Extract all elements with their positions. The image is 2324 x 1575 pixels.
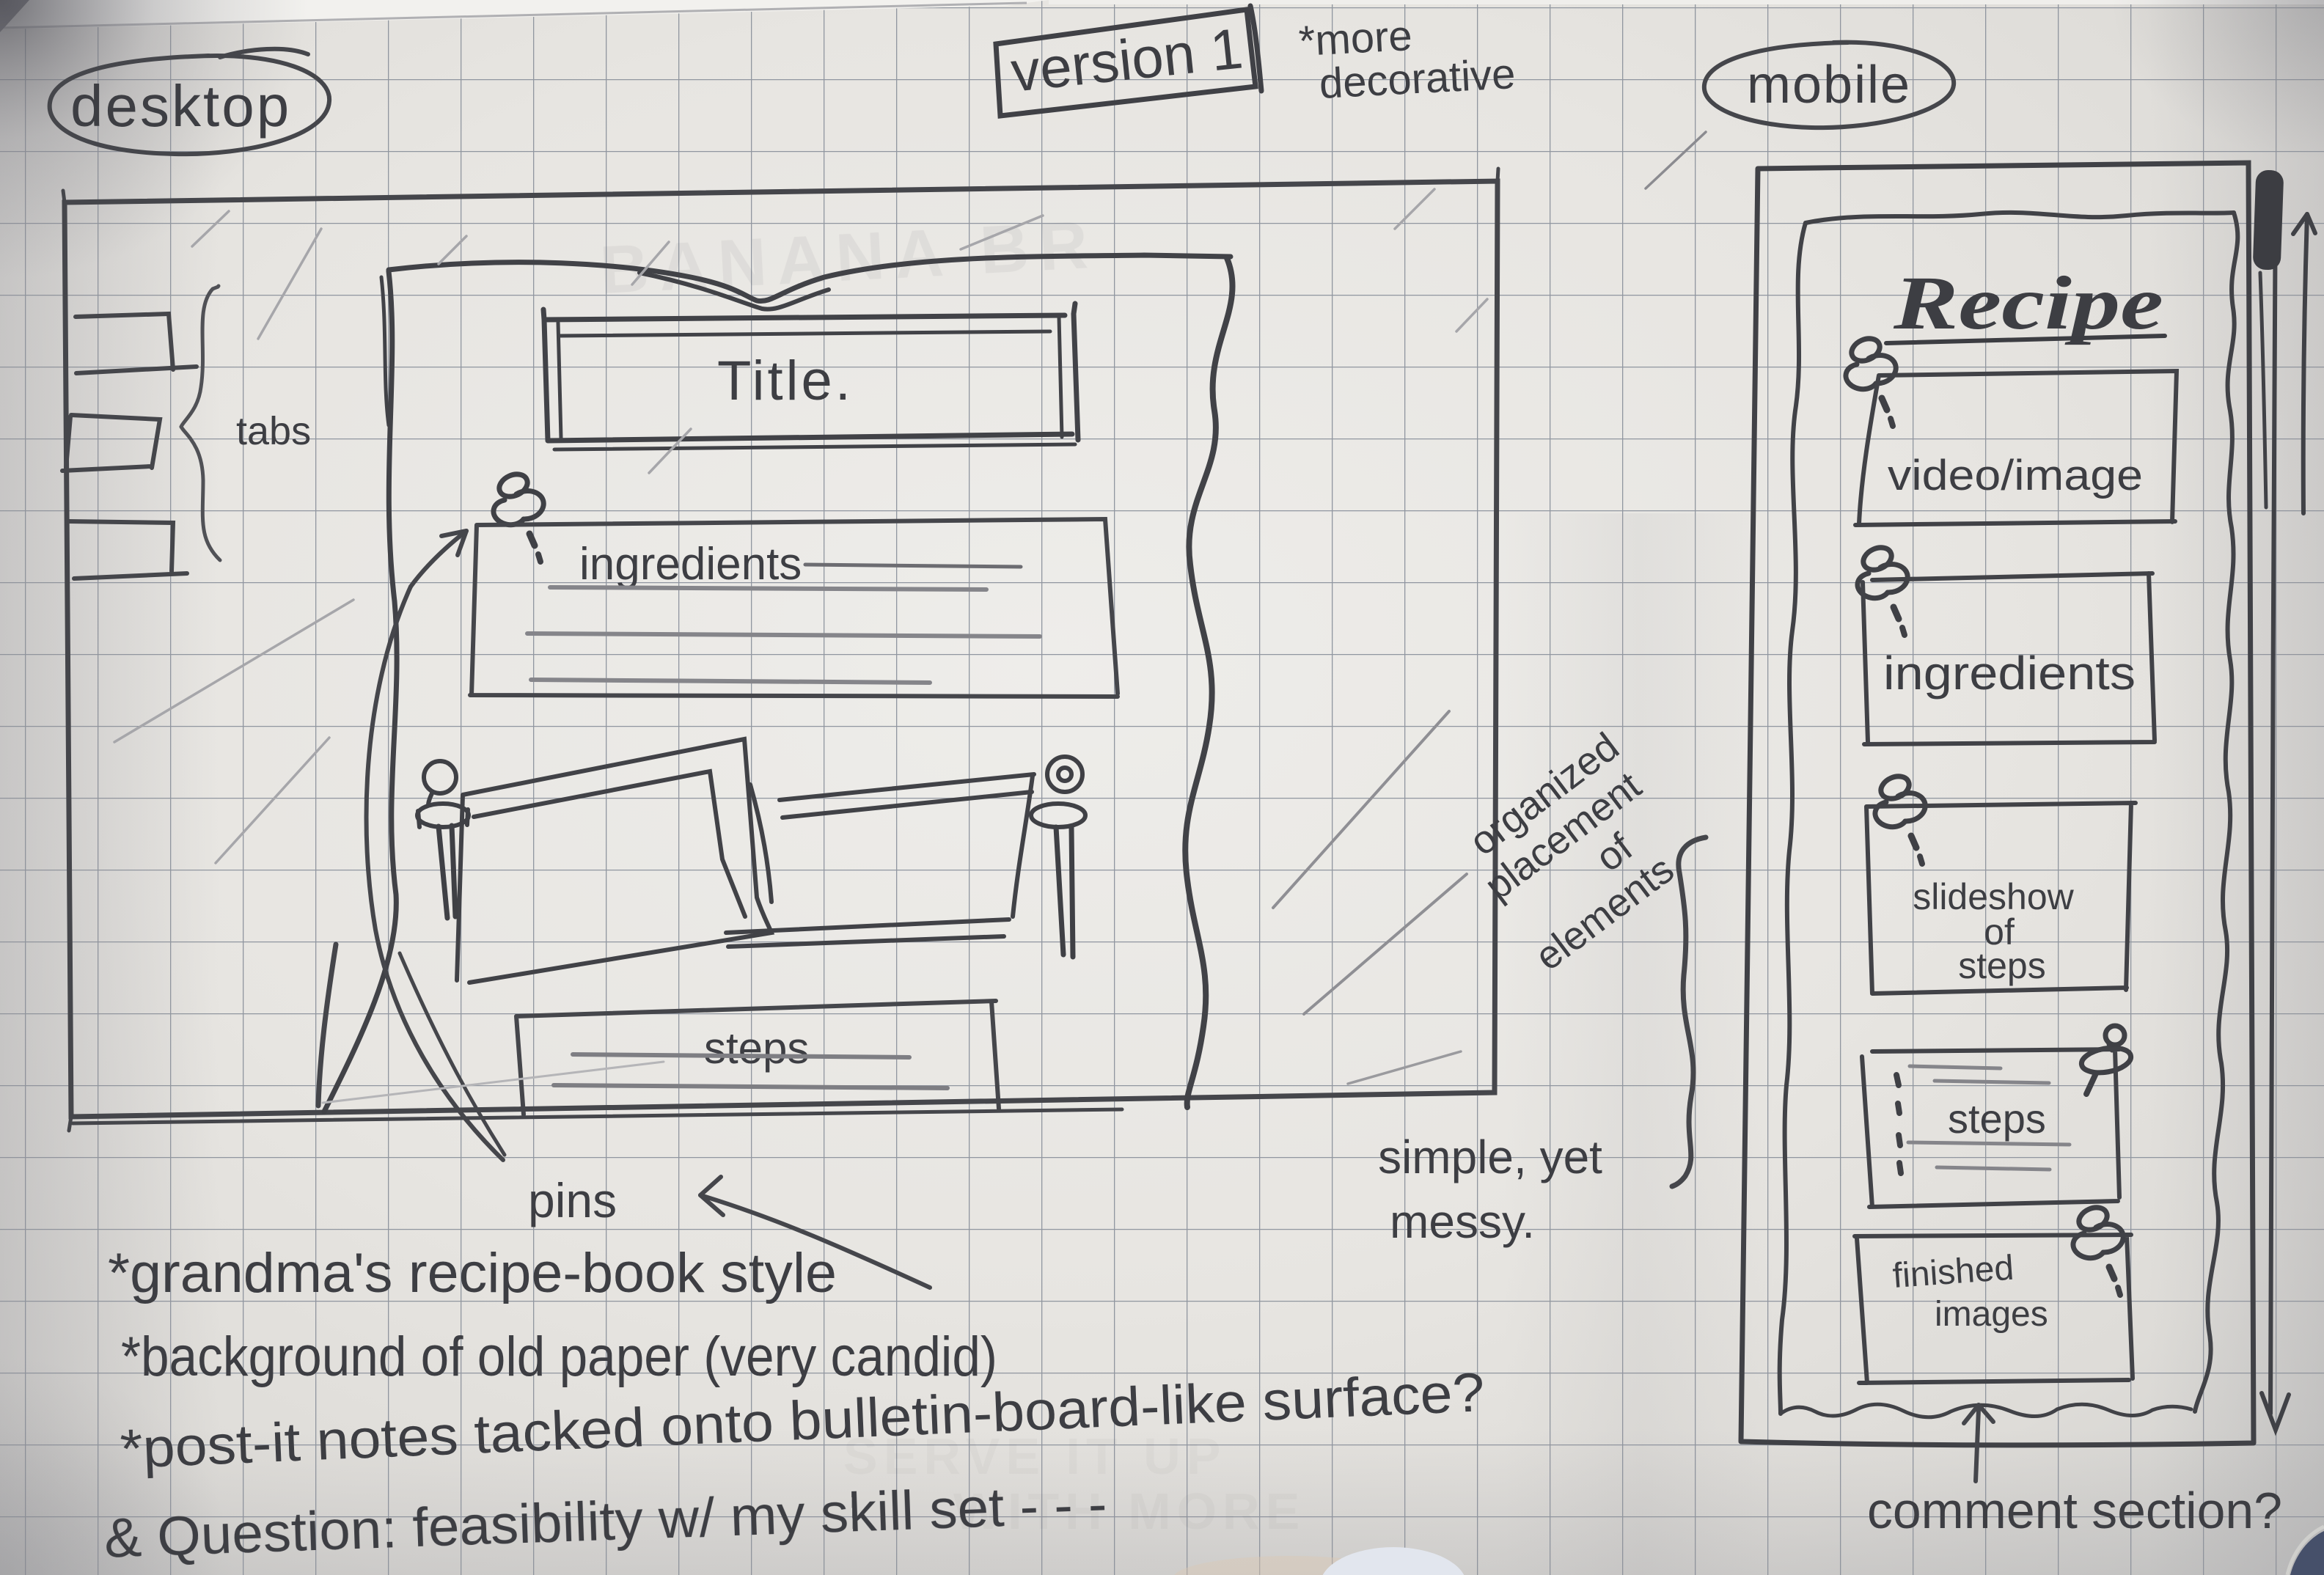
svg-text:steps: steps: [1948, 1095, 2046, 1142]
svg-text:Title.: Title.: [717, 350, 854, 412]
svg-text:simple, yet: simple, yet: [1378, 1131, 1602, 1183]
svg-text:steps: steps: [704, 1024, 809, 1073]
svg-text:pins: pins: [528, 1173, 617, 1227]
svg-text:ingredients: ingredients: [579, 539, 802, 590]
svg-text:desktop: desktop: [70, 73, 291, 139]
svg-text:steps: steps: [1958, 945, 2046, 986]
svg-text:Recipe: Recipe: [1893, 261, 2163, 345]
svg-text:*grandma's recipe-book style: *grandma's recipe-book style: [108, 1242, 837, 1304]
svg-text:ingredients: ingredients: [1883, 647, 2136, 700]
svg-text:tabs: tabs: [236, 409, 311, 453]
svg-text:*background of old paper (very: *background of old paper (very candid): [121, 1326, 997, 1388]
svg-text:mobile: mobile: [1747, 56, 1911, 114]
svg-text:images: images: [1935, 1295, 2048, 1334]
svg-text:messy.: messy.: [1390, 1195, 1535, 1248]
svg-text:video/image: video/image: [1888, 452, 2143, 499]
svg-text:comment section?: comment section?: [1867, 1482, 2282, 1539]
